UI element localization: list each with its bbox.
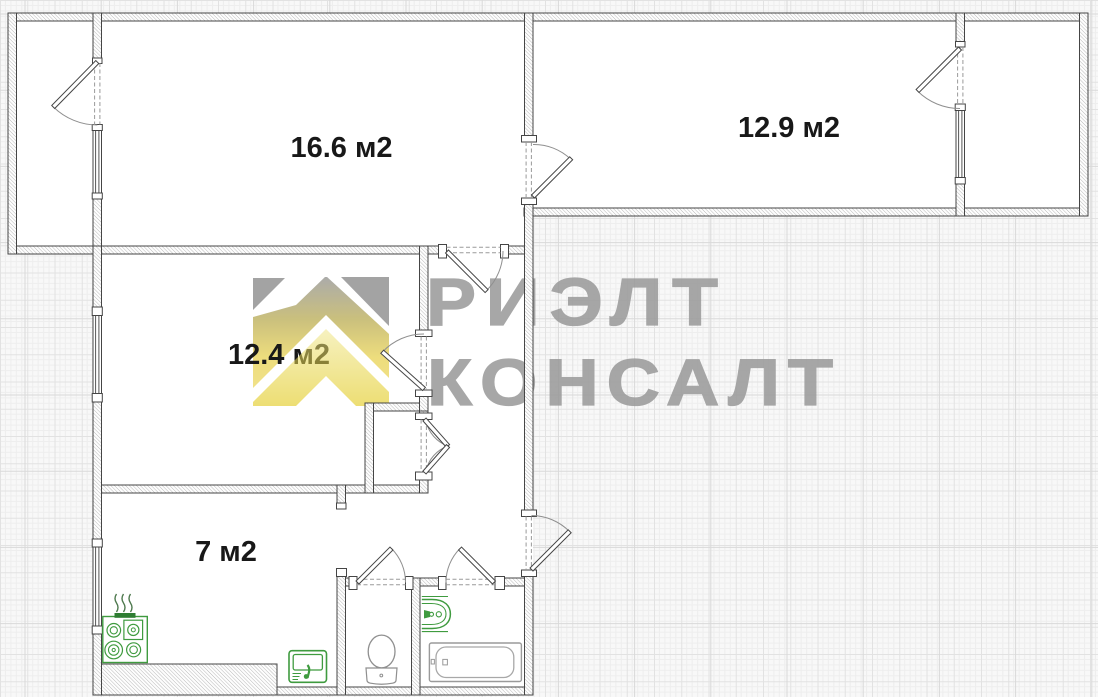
svg-text:7 м2: 7 м2 bbox=[195, 536, 257, 568]
svg-text:КОНСАЛТ: КОНСАЛТ bbox=[427, 346, 833, 419]
svg-text:12.9 м2: 12.9 м2 bbox=[738, 112, 840, 144]
svg-text:16.6 м2: 16.6 м2 bbox=[290, 132, 392, 164]
